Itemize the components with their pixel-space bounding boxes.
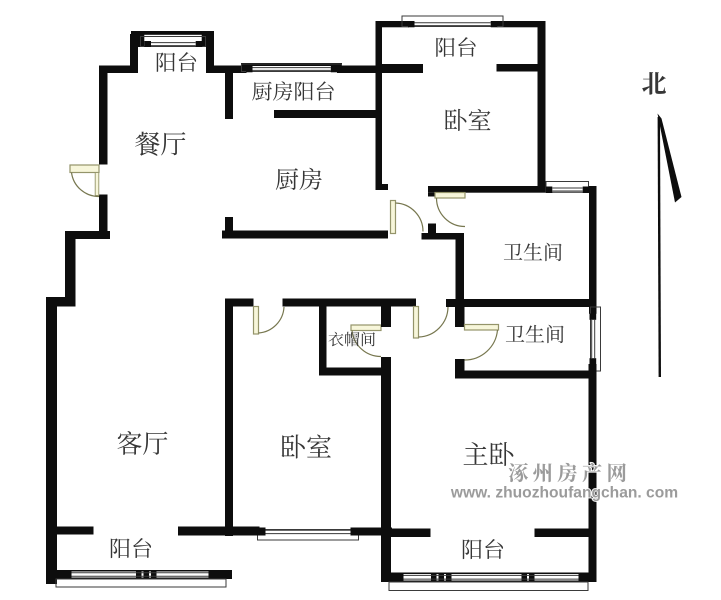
svg-text:www. zhuozhoufangchan. com: www. zhuozhoufangchan. com [450,485,678,502]
